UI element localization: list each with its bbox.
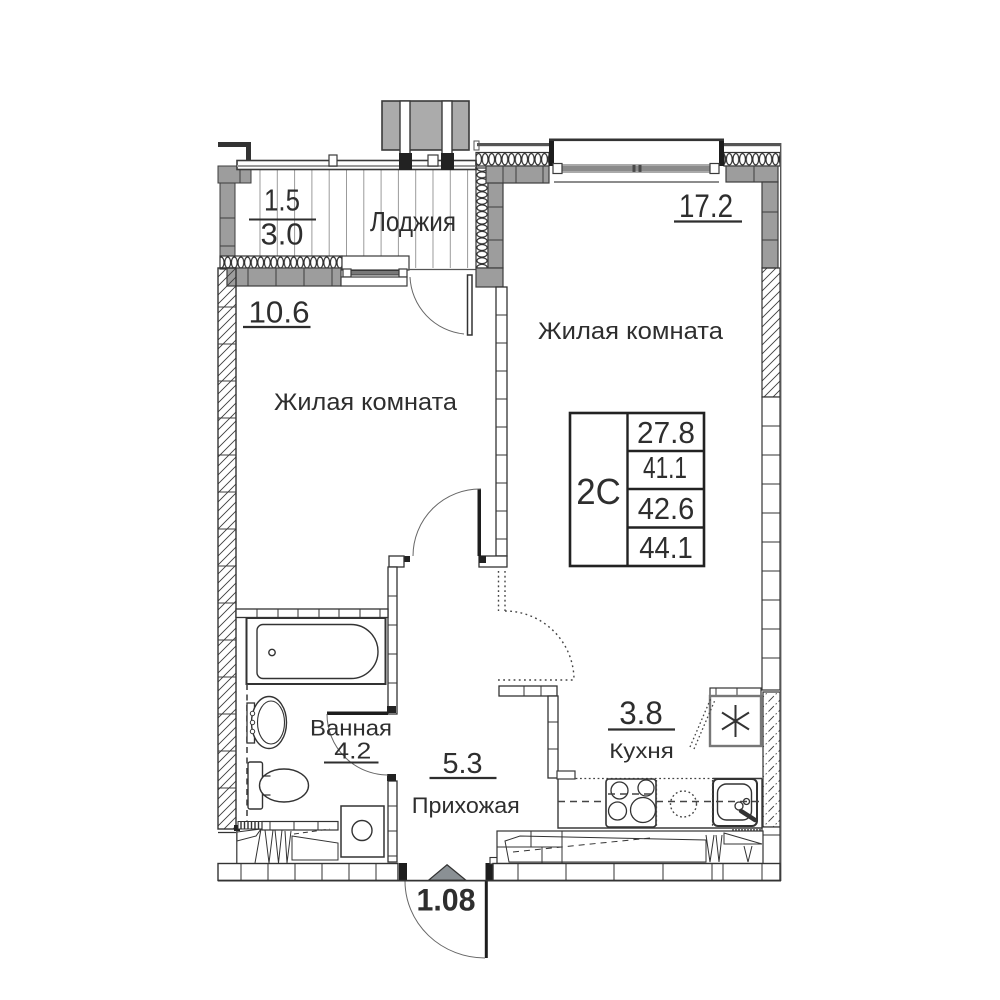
- svg-text:Жилая комната: Жилая комната: [538, 318, 723, 345]
- svg-text:2С: 2С: [576, 471, 621, 512]
- svg-text:3.0: 3.0: [261, 217, 304, 252]
- svg-text:Лоджия: Лоджия: [370, 206, 456, 237]
- svg-text:27.8: 27.8: [637, 415, 695, 450]
- svg-text:Жилая комната: Жилая комната: [274, 389, 457, 416]
- svg-text:41.1: 41.1: [643, 450, 687, 485]
- svg-text:3.8: 3.8: [619, 695, 663, 731]
- svg-text:10.6: 10.6: [249, 295, 310, 330]
- svg-text:1.5: 1.5: [264, 183, 300, 218]
- svg-text:17.2: 17.2: [679, 188, 733, 224]
- svg-text:44.1: 44.1: [639, 530, 693, 565]
- svg-text:42.6: 42.6: [638, 491, 695, 526]
- svg-text:Кухня: Кухня: [609, 739, 674, 763]
- svg-text:5.3: 5.3: [443, 748, 483, 780]
- svg-text:1.08: 1.08: [417, 882, 476, 918]
- svg-text:Прихожая: Прихожая: [412, 793, 520, 818]
- svg-text:4.2: 4.2: [334, 738, 371, 764]
